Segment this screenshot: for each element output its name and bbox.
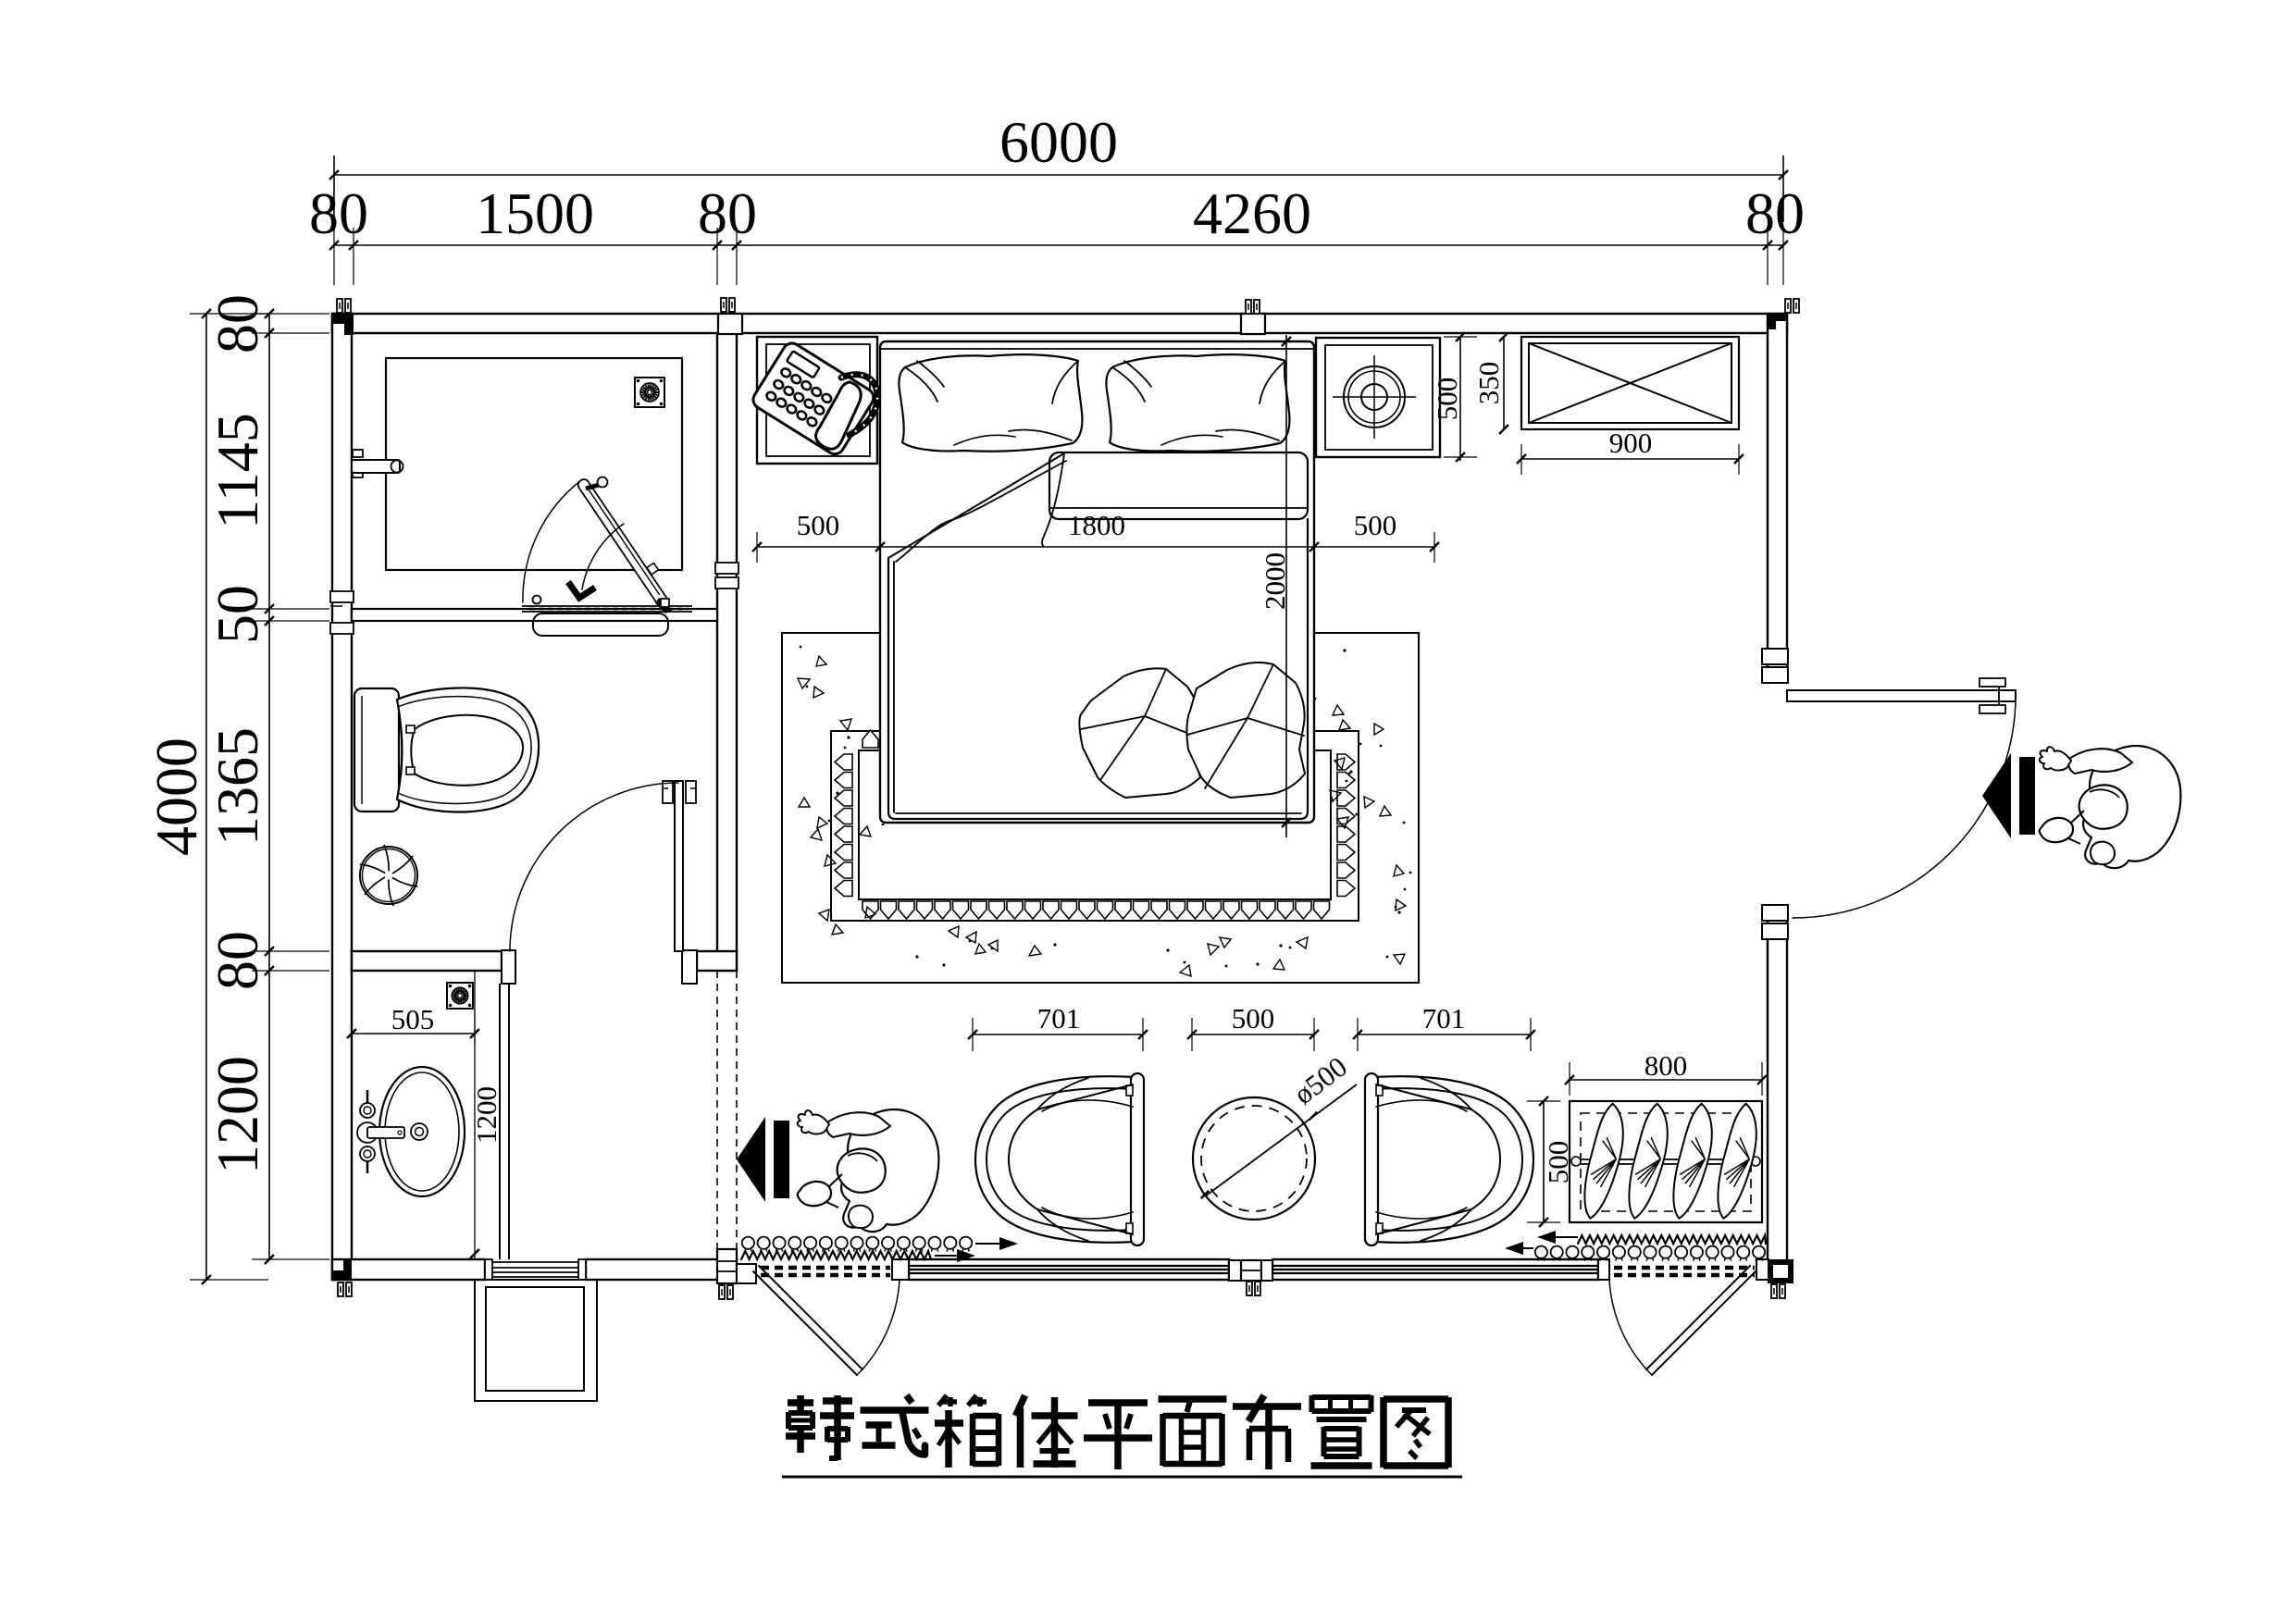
svg-text:500: 500: [1354, 509, 1397, 541]
svg-text:500: 500: [1542, 1141, 1574, 1184]
svg-text:80: 80: [698, 180, 757, 246]
svg-text:4260: 4260: [1193, 180, 1311, 246]
svg-text:1365: 1365: [205, 727, 270, 846]
svg-text:1200: 1200: [205, 1056, 270, 1174]
svg-text:1800: 1800: [1068, 509, 1125, 541]
svg-text:50: 50: [205, 585, 270, 644]
svg-text:900: 900: [1609, 427, 1653, 459]
svg-text:800: 800: [1644, 1049, 1688, 1082]
svg-text:500: 500: [1232, 1002, 1275, 1035]
svg-text:2000: 2000: [1259, 552, 1291, 610]
svg-text:350: 350: [1472, 362, 1505, 405]
svg-text:80: 80: [1745, 180, 1805, 246]
svg-text:80: 80: [205, 294, 270, 353]
svg-text:701: 701: [1422, 1002, 1466, 1035]
svg-text:6000: 6000: [999, 109, 1118, 175]
svg-text:500: 500: [797, 509, 840, 541]
svg-text:1500: 1500: [476, 180, 594, 246]
svg-text:500: 500: [1431, 378, 1463, 421]
svg-text:80: 80: [205, 931, 270, 990]
svg-text:1145: 1145: [205, 413, 270, 529]
svg-text:80: 80: [309, 180, 368, 246]
svg-text:505: 505: [391, 1003, 435, 1035]
svg-text:701: 701: [1037, 1002, 1081, 1035]
svg-text:4000: 4000: [143, 737, 209, 856]
svg-text:1200: 1200: [470, 1086, 503, 1144]
